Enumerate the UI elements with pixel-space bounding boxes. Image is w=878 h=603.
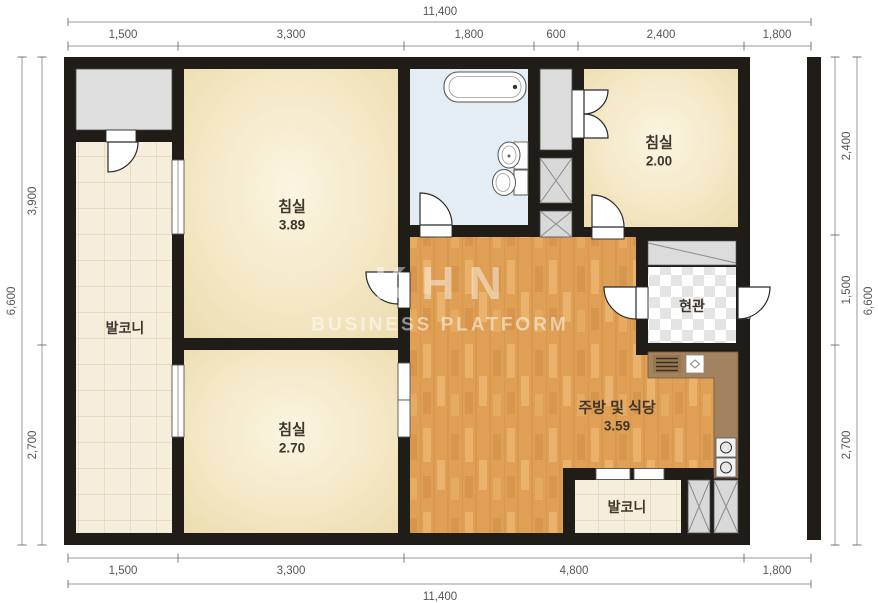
dim-left-seg-0: 3,900 [27,187,39,216]
bedroom-small-closet-jamb [572,90,584,138]
floor-plan-svg: 11,400 1,500 3,300 1,800 600 2,400 1,800… [0,0,878,603]
dim-top-seg-4: 2,400 [647,29,676,41]
dim-top-seg-2: 1,800 [455,29,484,41]
bedroom-large-label: 침실 [278,199,306,216]
sliding-door-bedroom-bottom-2 [398,400,410,437]
dim-top-seg-1: 3,300 [277,29,306,41]
watermark-subtitle: BUSINESS PLATFORM [311,315,569,336]
utility-room-floor [76,69,172,130]
bedroom-small-label: 침실 [645,135,673,152]
side-wall-bar [807,57,821,540]
dim-bottom-total: 11,400 [423,591,457,603]
floor-plan-page: 11,400 1,500 3,300 1,800 600 2,400 1,800… [0,0,878,603]
bathtub-faucet-icon [513,85,517,89]
dim-bottom-seg-3: 1,800 [763,565,792,577]
balcony-left-label: 발코니 [106,320,145,336]
dim-right-total: 6,600 [863,287,875,316]
bedroom-small-door-jamb [592,227,624,239]
cooktop-box [686,355,704,373]
entrance-inner-door-jamb [636,287,648,319]
dim-top-seg-0: 1,500 [109,29,138,41]
balcony-bottom-window-2 [634,469,664,480]
bedroom-bottom-area: 2.70 [279,441,305,456]
dim-top-seg-3: 600 [546,29,565,41]
dim-bottom-seg-2: 4,800 [560,565,589,577]
duct-box [540,69,572,150]
bedroom-small-area: 2.00 [646,154,672,169]
dim-bottom-seg-1: 3,300 [277,565,306,577]
toilet-tank [514,170,528,195]
watermark-logo: KHN [374,257,516,309]
kitchen-dining-label: 주방 및 식당 [578,399,656,417]
stove-burner-2-ring [721,462,732,473]
balcony-bottom-label: 발코니 [608,499,647,515]
dim-bottom-seg-0: 1,500 [109,565,138,577]
bathroom-door-jamb [420,225,452,237]
entrance-block [648,241,736,343]
dim-left-seg-1: 2,700 [27,431,39,460]
dim-right-seg-1: 1,500 [841,276,853,305]
dim-top-seg-5: 1,800 [763,29,792,41]
balcony-left-door-jamb [106,130,136,142]
entrance-label: 현관 [679,298,705,314]
dim-top-total: 11,400 [423,6,457,18]
stove-burner-1-ring [721,442,732,453]
sink-drain [508,155,511,158]
dim-right-seg-2: 2,700 [841,431,853,460]
living-floor-lower [410,468,563,533]
sliding-door-bedroom-bottom-1 [398,363,410,400]
bedroom-bottom-label: 침실 [278,422,306,439]
balcony-bottom-window-1 [596,469,630,480]
kitchen-dining-area: 3.59 [604,419,630,434]
balcony-left-floor [76,142,172,533]
dim-left-total: 6,600 [6,287,18,316]
bedroom-large-area: 3.89 [279,218,305,233]
dim-right-seg-0: 2,400 [841,132,853,161]
